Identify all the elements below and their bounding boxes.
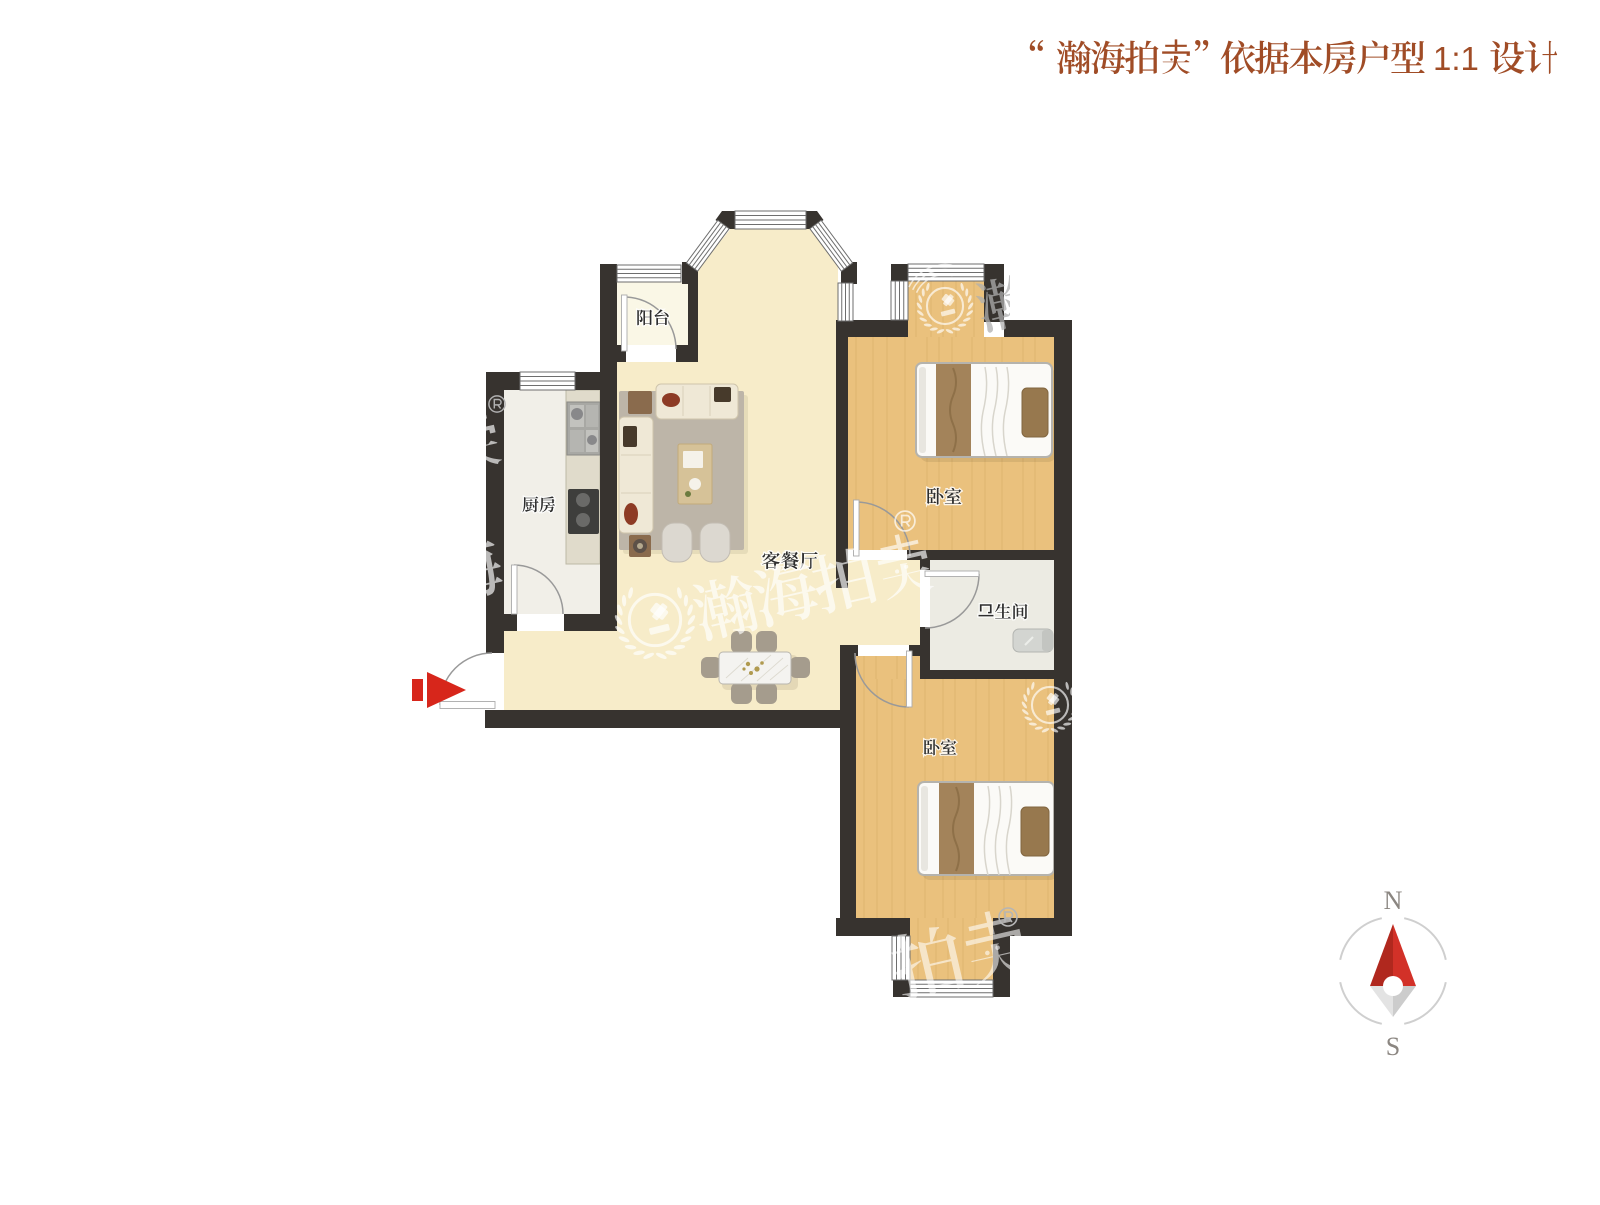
- svg-text:S: S: [1386, 1032, 1400, 1061]
- svg-text:1:1: 1:1: [1433, 40, 1479, 77]
- svg-text:N: N: [1384, 886, 1403, 915]
